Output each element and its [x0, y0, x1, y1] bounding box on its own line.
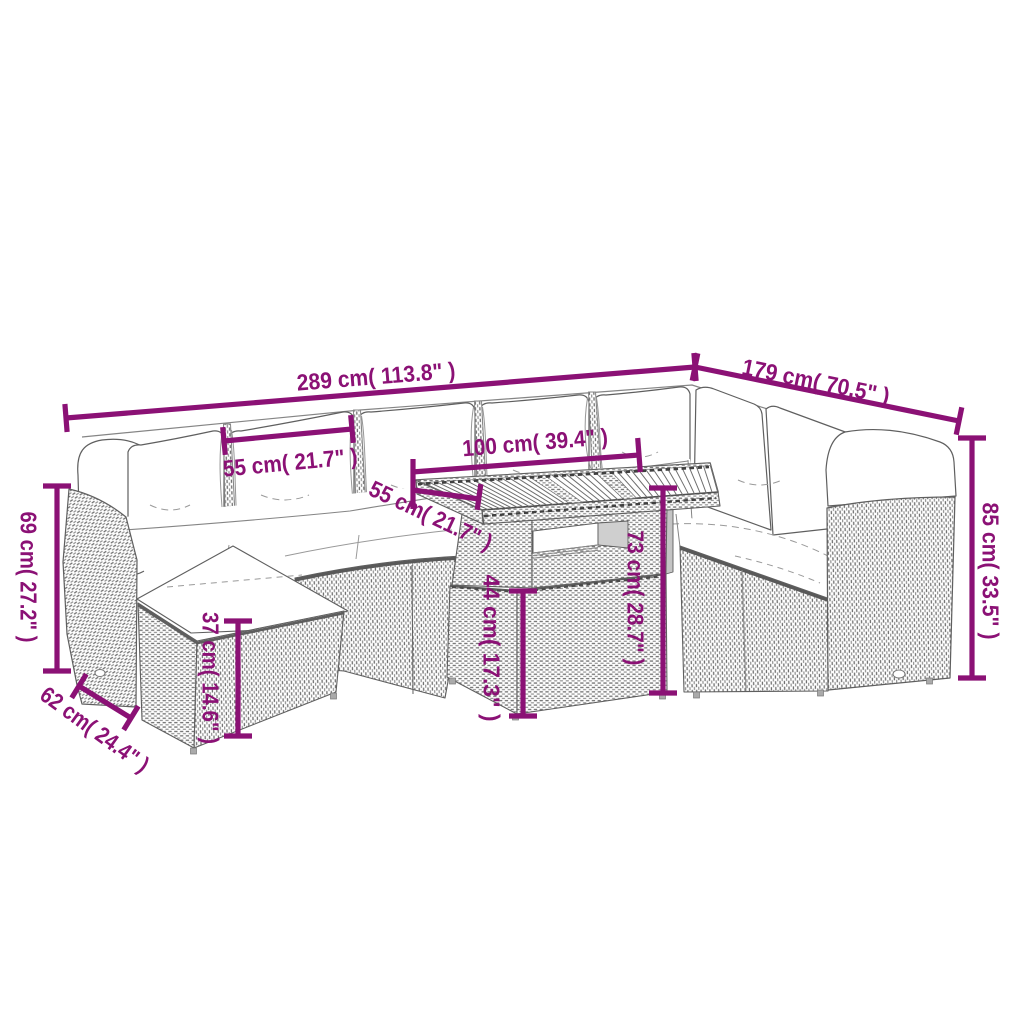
- svg-text:37 cm( 14.6" ): 37 cm( 14.6" ): [198, 612, 224, 744]
- svg-text:69 cm( 27.2" ): 69 cm( 27.2" ): [16, 512, 42, 643]
- svg-text:85 cm( 33.5" ): 85 cm( 33.5" ): [978, 503, 1004, 640]
- svg-text:73 cm( 28.7" ): 73 cm( 28.7" ): [623, 531, 649, 666]
- svg-text:44 cm( 17.3" ): 44 cm( 17.3" ): [479, 575, 505, 722]
